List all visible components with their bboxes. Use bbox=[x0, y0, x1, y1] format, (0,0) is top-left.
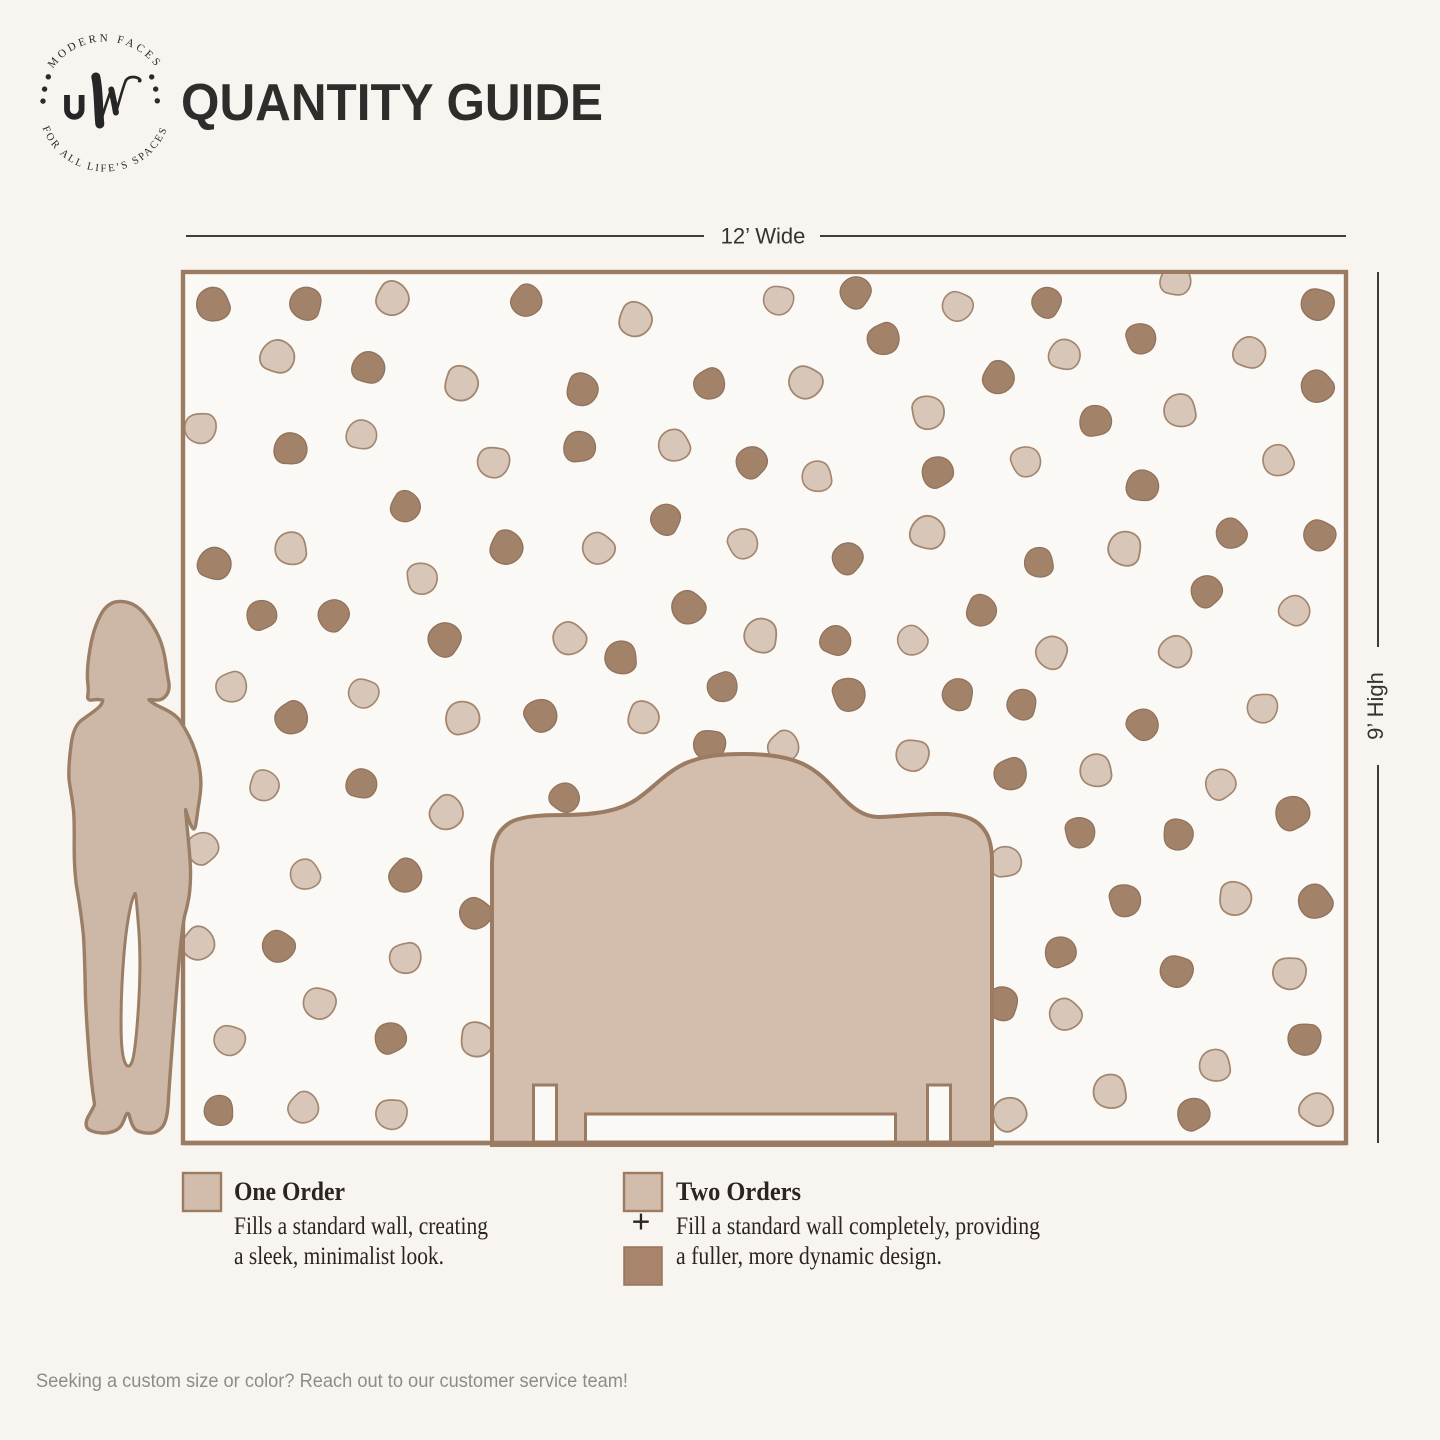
svg-text:Seeking a custom size or color: Seeking a custom size or color? Reach ou… bbox=[36, 1370, 628, 1392]
svg-text:QUANTITY GUIDE: QUANTITY GUIDE bbox=[181, 74, 603, 132]
svg-text:a sleek, minimalist look.: a sleek, minimalist look. bbox=[234, 1243, 444, 1270]
svg-text:12’ Wide: 12’ Wide bbox=[721, 224, 806, 249]
svg-text:One Order: One Order bbox=[234, 1177, 345, 1206]
svg-text:+: + bbox=[632, 1204, 651, 1240]
svg-text:Fill a standard wall completel: Fill a standard wall completely, providi… bbox=[676, 1213, 1040, 1240]
svg-text:9’ High: 9’ High bbox=[1363, 672, 1388, 740]
svg-text:Fills a standard wall, creatin: Fills a standard wall, creating bbox=[234, 1213, 488, 1240]
svg-text:a fuller, more dynamic design.: a fuller, more dynamic design. bbox=[676, 1243, 942, 1270]
svg-text:Two Orders: Two Orders bbox=[676, 1177, 801, 1206]
